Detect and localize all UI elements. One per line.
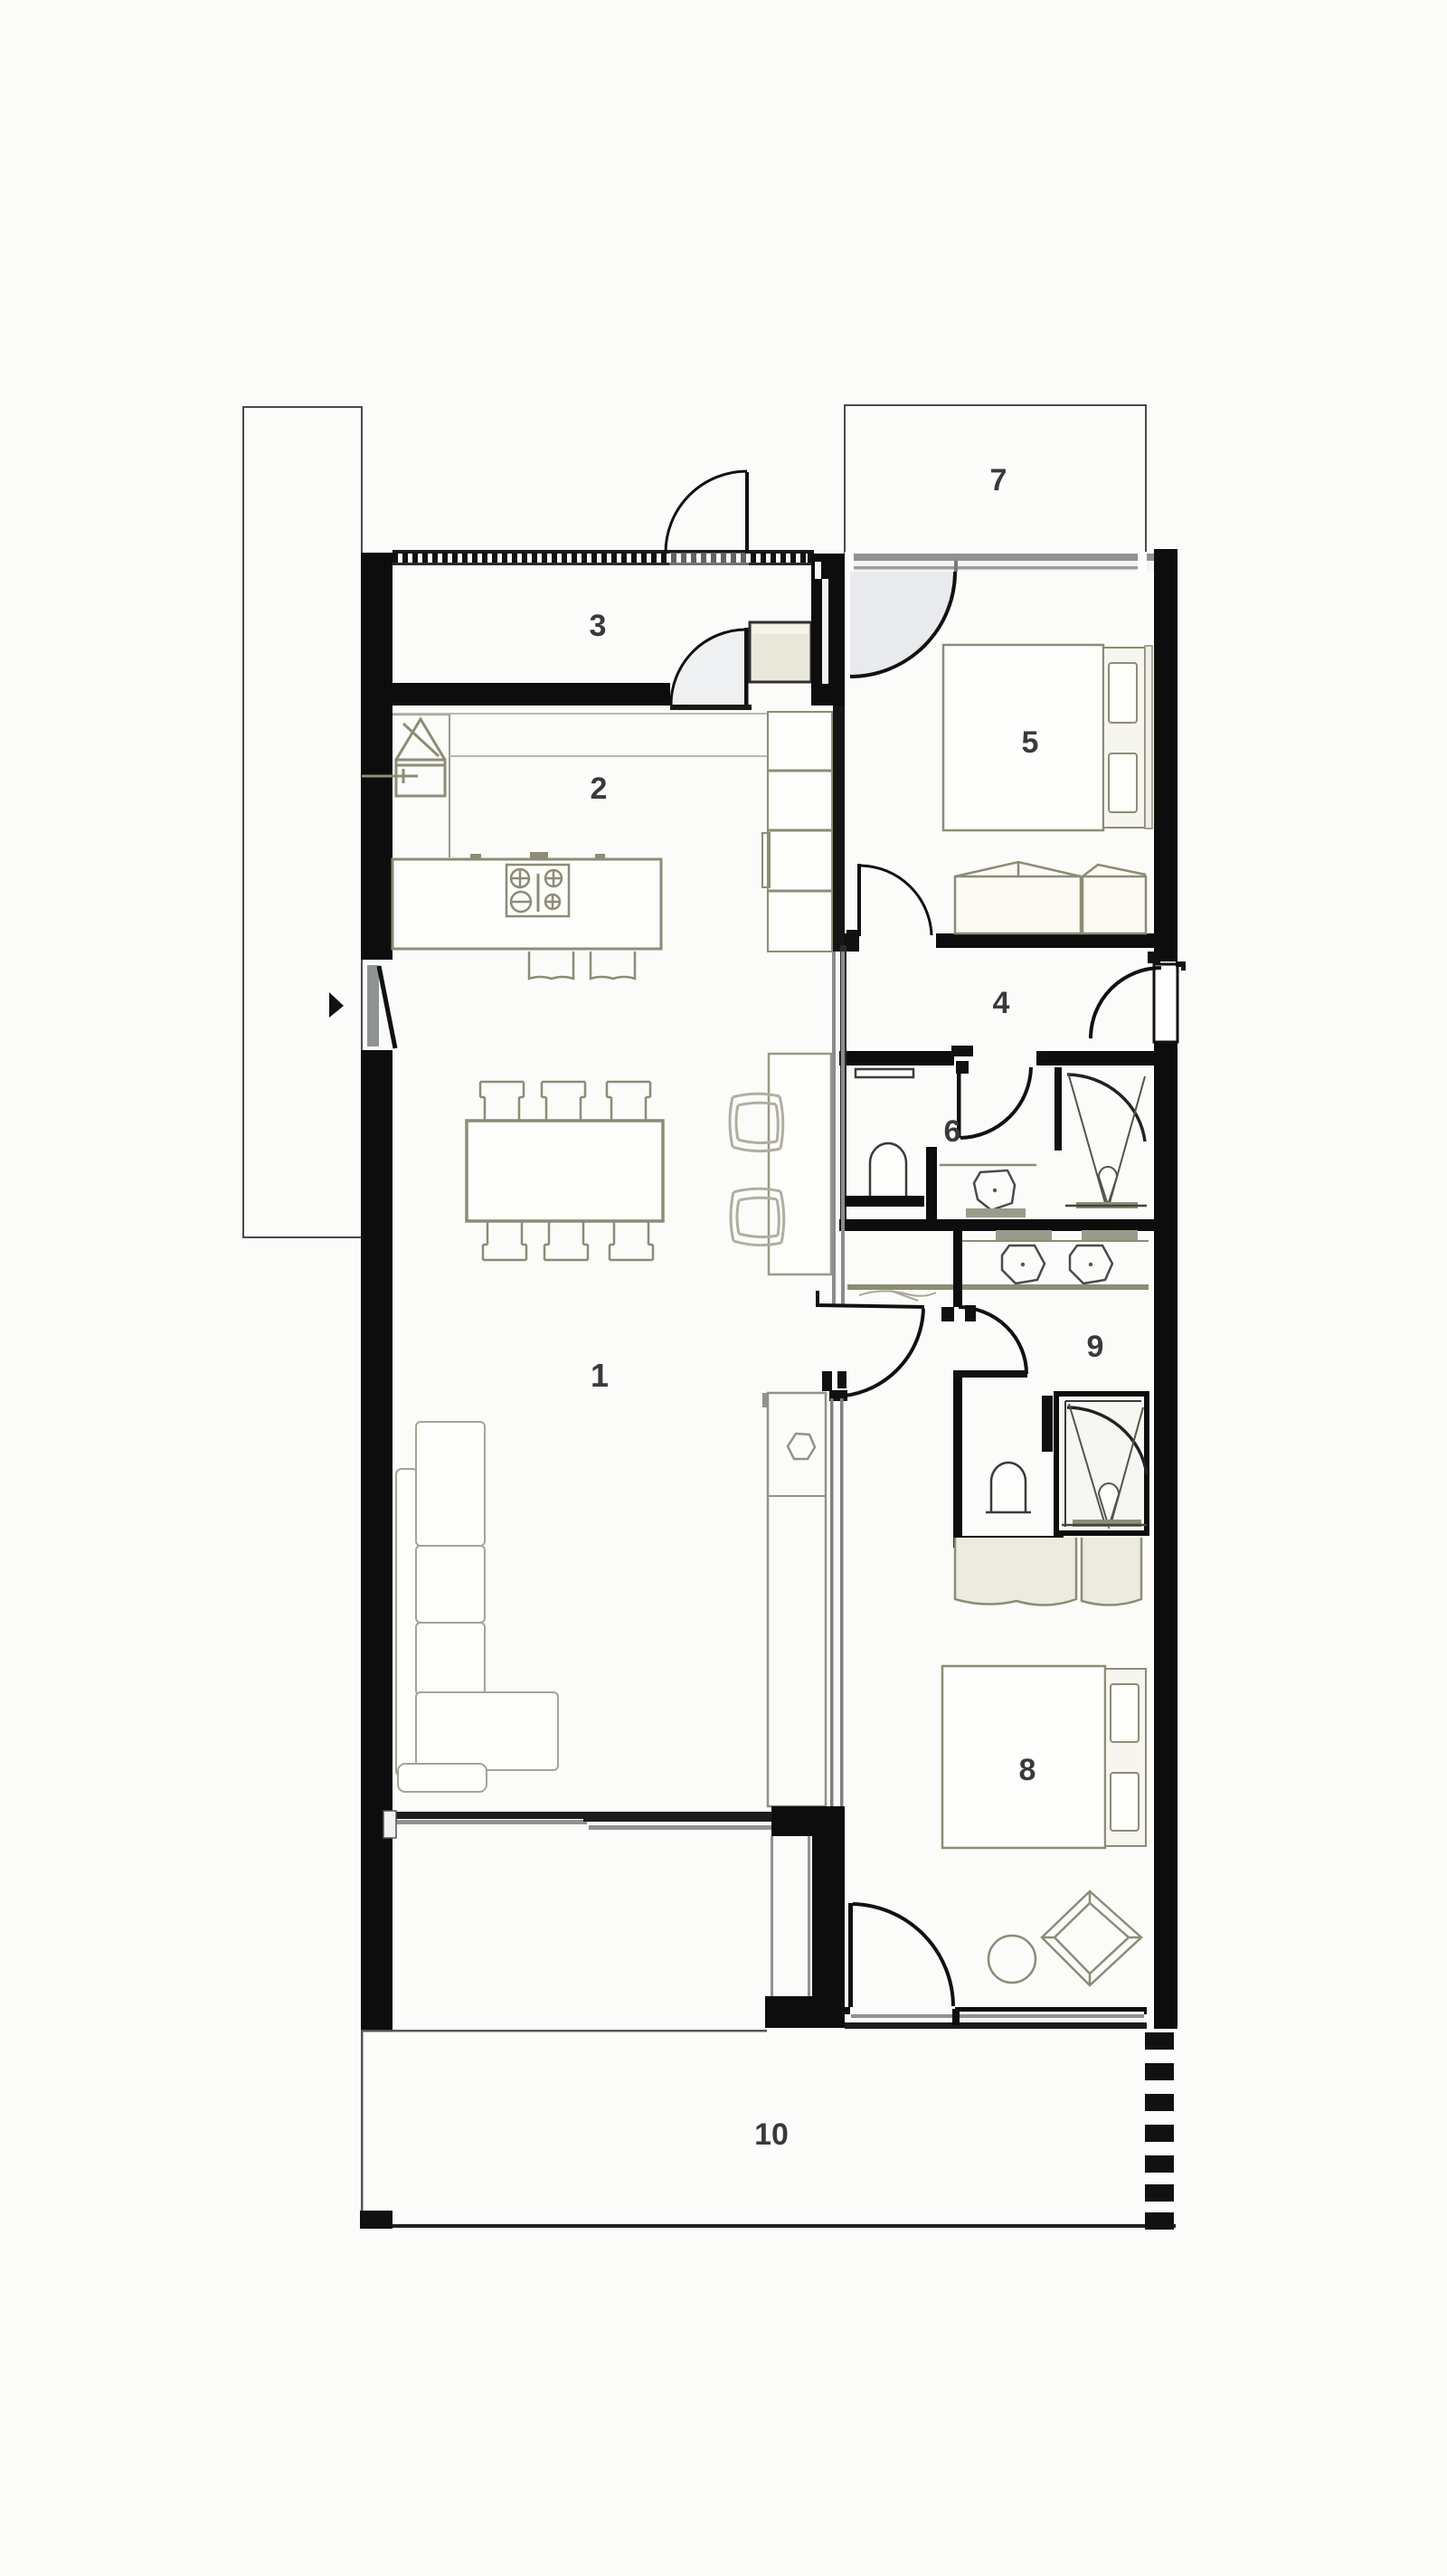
svg-text:2: 2 [591,772,608,806]
svg-text:1: 1 [591,1357,609,1394]
svg-text:7: 7 [990,463,1007,497]
svg-text:4: 4 [993,986,1010,1020]
svg-text:8: 8 [1019,1753,1036,1787]
svg-text:3: 3 [590,609,607,643]
svg-text:5: 5 [1022,725,1039,760]
svg-text:9: 9 [1087,1330,1104,1364]
svg-text:6: 6 [944,1114,961,1149]
svg-text:10: 10 [754,2117,789,2152]
